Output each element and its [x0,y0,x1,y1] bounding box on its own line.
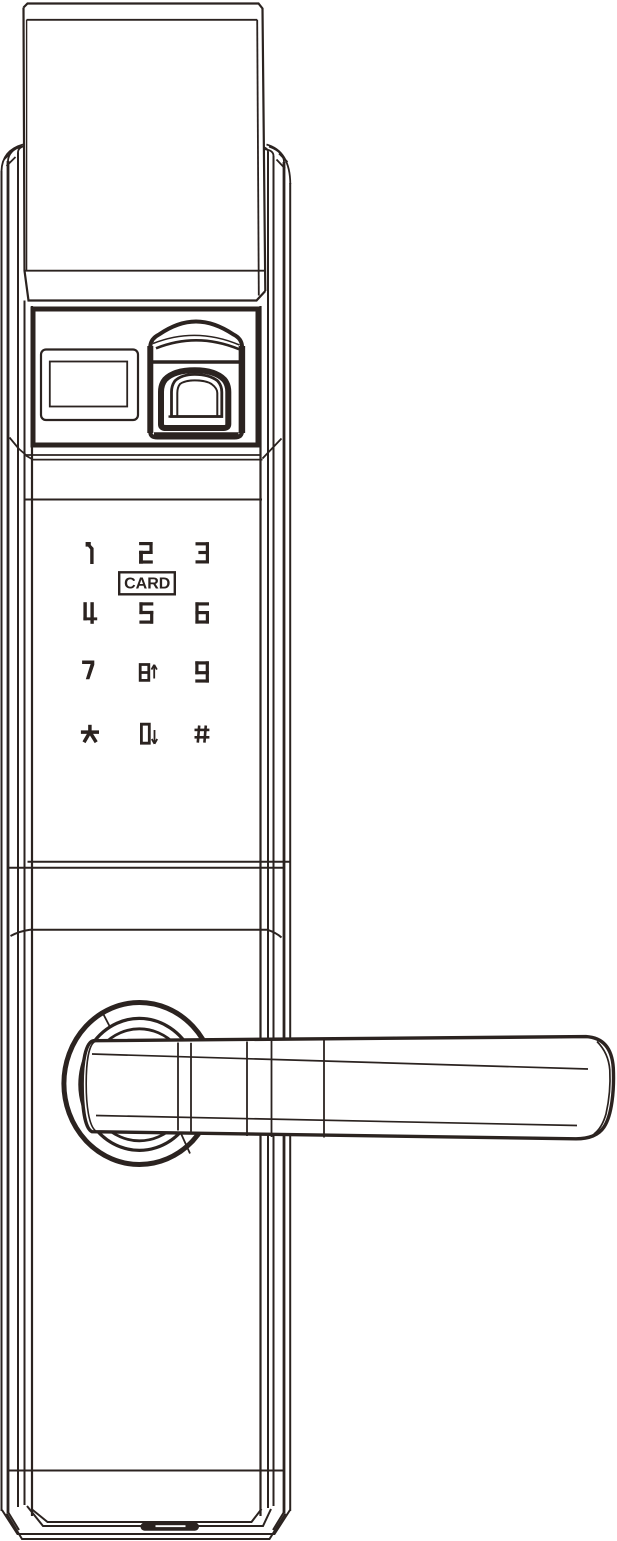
svg-text:CARD: CARD [124,575,170,592]
